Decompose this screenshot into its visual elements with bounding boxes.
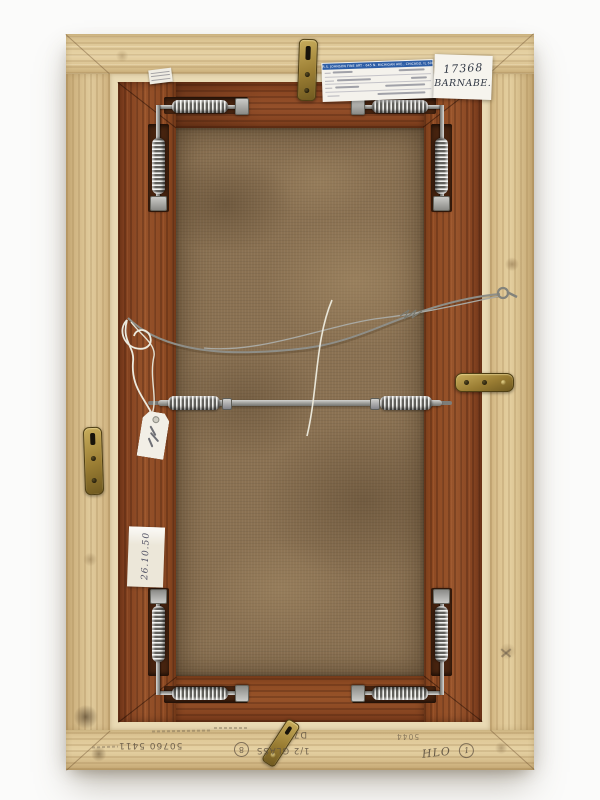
spring-bracket <box>235 98 249 115</box>
coil-spring <box>380 396 432 410</box>
tag-scribble <box>148 438 153 448</box>
coil-spring <box>372 687 428 700</box>
spring-bracket <box>235 685 249 702</box>
center-tension-rod <box>148 394 452 412</box>
date-label-text: 26.10.50 <box>140 532 152 580</box>
tag-hole <box>152 416 160 424</box>
hanger-slot <box>90 433 95 445</box>
rod-nut <box>370 398 380 410</box>
coil-spring <box>152 138 165 194</box>
hanger-slot <box>305 46 310 60</box>
corner-spring-unit-top-left <box>148 96 248 214</box>
pencil-inscription-5044: 5044 <box>396 732 419 741</box>
coil-spring <box>372 100 428 113</box>
pencil-inscription-stock-number: 50760 5411 <box>118 740 182 750</box>
outer-frame-rail-right <box>490 74 534 730</box>
screw <box>92 478 97 483</box>
screw-hole <box>464 380 469 385</box>
coil-spring <box>152 606 165 662</box>
photo-of-frame-back: R.S. JOHNSON FINE ART · 645 N. MICHIGAN … <box>0 0 600 800</box>
coil-spring <box>435 606 448 662</box>
coil-spring <box>172 100 228 113</box>
brass-plate-left <box>83 427 104 496</box>
coil-spring <box>172 687 228 700</box>
pencil-inscription-glass-note: 1/2 GLASS <box>256 745 310 755</box>
screw <box>305 72 310 77</box>
corner-spring-unit-bottom-right <box>352 586 452 704</box>
inventory-number: 17368 <box>434 60 493 76</box>
coil-spring <box>435 138 448 194</box>
spring-bracket <box>433 589 450 604</box>
pencil-inscription-circled-8: 8 <box>234 742 249 757</box>
inventory-name: BARNABE. <box>434 78 492 89</box>
date-label: 26.10.50 <box>127 526 165 587</box>
screw <box>304 88 309 93</box>
inventory-label: 17368 BARNABE. <box>433 54 493 100</box>
spring-bracket <box>150 196 167 211</box>
framer-label: R.S. JOHNSON FINE ART · 645 N. MICHIGAN … <box>321 59 434 102</box>
hanger-slot <box>284 726 292 736</box>
spring-bracket <box>351 685 365 702</box>
outer-frame-rail-left <box>66 74 110 730</box>
screw <box>501 380 506 385</box>
brass-plate-right <box>455 373 514 392</box>
brass-hanger-top <box>297 39 318 102</box>
corner-spring-unit-bottom-left <box>148 586 248 704</box>
coil-spring <box>168 396 220 410</box>
rod-nut <box>222 398 232 410</box>
spring-bracket <box>150 589 167 604</box>
spring-bracket <box>433 196 450 211</box>
pencil-scribble <box>214 727 248 729</box>
corner-spring-unit-top-right <box>352 96 452 214</box>
screw <box>91 456 96 461</box>
pencil-inscription-d7: D7 <box>293 729 307 739</box>
mini-sticker <box>148 68 173 85</box>
screw-hole <box>482 380 487 385</box>
